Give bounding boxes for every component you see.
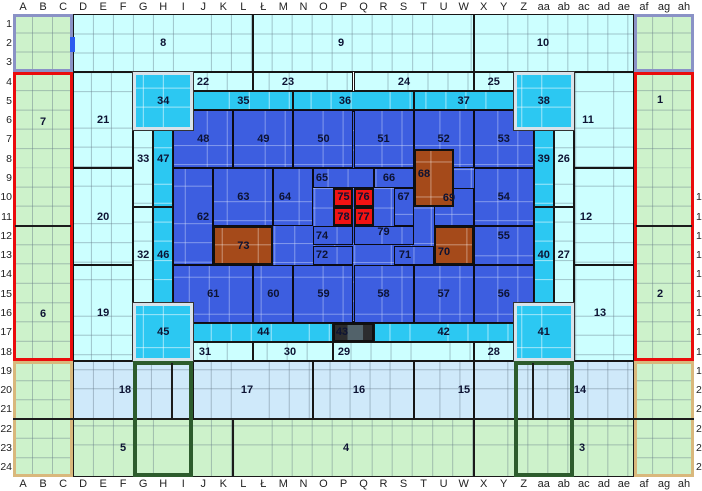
- row-header-right-16: 1: [696, 307, 702, 319]
- col-header-bottom-H: H: [159, 478, 167, 490]
- row-header-left-2: 2: [0, 37, 12, 49]
- sector-18[interactable]: [73, 361, 193, 419]
- row-header-right-20: 2: [696, 384, 702, 396]
- col-header-bottom-Z: Z: [520, 478, 527, 490]
- col-header-top-X: X: [480, 1, 487, 13]
- row-header-right-15: 1: [696, 288, 702, 300]
- sector-74[interactable]: [313, 226, 353, 245]
- col-header-top-ag: ag: [658, 1, 670, 13]
- sector-46[interactable]: [153, 207, 173, 303]
- sector-25[interactable]: [474, 72, 514, 91]
- venue-seat-map: 7612891021201911121322232425313029283332…: [0, 0, 702, 491]
- col-header-bottom-Y: Y: [500, 478, 507, 490]
- row-header-left-15: 15: [0, 288, 12, 300]
- col-header-top-S: S: [400, 1, 407, 13]
- sector-70[interactable]: [434, 226, 474, 265]
- sector-15[interactable]: [414, 361, 474, 419]
- col-header-top-R: R: [380, 1, 388, 13]
- row-header-left-6: 6: [0, 114, 12, 126]
- sector-45[interactable]: [133, 303, 193, 361]
- row-header-right-17: 1: [696, 326, 702, 338]
- col-header-top-J: J: [201, 1, 207, 13]
- col-header-top-G: G: [139, 1, 148, 13]
- row-header-left-22: 22: [0, 423, 12, 435]
- row-header-left-16: 16: [0, 307, 12, 319]
- col-header-top-ah: ah: [678, 1, 690, 13]
- col-header-top-O: O: [319, 1, 328, 13]
- sector-49[interactable]: [233, 110, 293, 168]
- col-header-top-A: A: [19, 1, 26, 13]
- col-header-bottom-af: af: [639, 478, 648, 490]
- col-header-bottom-ah: ah: [678, 478, 690, 490]
- row-header-left-17: 17: [0, 326, 12, 338]
- sector-72[interactable]: [313, 246, 353, 265]
- col-header-top-ad: ad: [598, 1, 610, 13]
- sector-37[interactable]: [414, 91, 514, 110]
- col-header-top-Q: Q: [359, 1, 368, 13]
- sector-58[interactable]: [354, 265, 414, 323]
- sector-29[interactable]: [333, 342, 473, 361]
- sector-9[interactable]: [253, 14, 473, 72]
- row-header-left-7: 7: [0, 133, 12, 145]
- sector-17[interactable]: [193, 361, 313, 419]
- sector-77[interactable]: [354, 207, 374, 226]
- sector-60[interactable]: [253, 265, 293, 323]
- sector-7[interactable]: [13, 72, 73, 226]
- sector-79[interactable]: [354, 226, 414, 245]
- sector-35[interactable]: [193, 91, 293, 110]
- sector-3[interactable]: [474, 419, 634, 477]
- sector-68[interactable]: [414, 149, 454, 207]
- sector-50[interactable]: [293, 110, 353, 168]
- row-header-left-5: 5: [0, 95, 12, 107]
- row-header-left-4: 4: [0, 76, 12, 88]
- sector-64[interactable]: [273, 168, 313, 226]
- col-header-bottom-ag: ag: [658, 478, 670, 490]
- col-header-top-F: F: [120, 1, 127, 13]
- col-header-top-L: L: [240, 1, 246, 13]
- row-header-left-14: 14: [0, 268, 12, 280]
- row-header-left-13: 13: [0, 249, 12, 261]
- col-header-top-aa: aa: [538, 1, 550, 13]
- sector-63[interactable]: [213, 168, 273, 226]
- col-header-top-W: W: [458, 1, 468, 13]
- row-header-left-21: 21: [0, 403, 12, 415]
- row-header-right-19: 1: [696, 365, 702, 377]
- col-header-bottom-ad: ad: [598, 478, 610, 490]
- sector-10[interactable]: [474, 14, 634, 72]
- col-header-bottom-B: B: [39, 478, 46, 490]
- sector-30[interactable]: [253, 342, 333, 361]
- row-header-left-24: 24: [0, 461, 12, 473]
- sector-27[interactable]: [554, 207, 574, 303]
- col-header-bottom-X: X: [480, 478, 487, 490]
- col-header-top-K: K: [220, 1, 227, 13]
- col-header-bottom-ae: ae: [618, 478, 630, 490]
- sector-44[interactable]: [193, 323, 333, 342]
- sector-43[interactable]: [333, 323, 373, 342]
- col-header-bottom-L: L: [240, 478, 246, 490]
- sector-26[interactable]: [554, 130, 574, 207]
- row-header-right-10: 1: [696, 191, 702, 203]
- sector-5[interactable]: [73, 419, 233, 477]
- sector-39[interactable]: [534, 130, 554, 207]
- sector-11[interactable]: [574, 72, 634, 168]
- col-header-bottom-C: C: [59, 478, 67, 490]
- col-header-top-B: B: [39, 1, 46, 13]
- col-header-top-af: af: [639, 1, 648, 13]
- row-header-left-18: 18: [0, 346, 12, 358]
- sector-13[interactable]: [574, 265, 634, 361]
- col-header-bottom-ac: ac: [578, 478, 590, 490]
- sector-21[interactable]: [73, 72, 133, 168]
- col-header-bottom-K: K: [220, 478, 227, 490]
- col-header-bottom-I: I: [182, 478, 185, 490]
- col-header-bottom-aa: aa: [538, 478, 550, 490]
- green-corner-top-left: [13, 14, 73, 72]
- sector-59[interactable]: [293, 265, 353, 323]
- col-header-top-N: N: [299, 1, 307, 13]
- sector-51[interactable]: [354, 110, 414, 168]
- row-header-left-11: 11: [0, 211, 12, 223]
- sector-32[interactable]: [133, 207, 153, 303]
- row-header-right-14: 1: [696, 268, 702, 280]
- sector-36[interactable]: [293, 91, 413, 110]
- col-header-bottom-S: S: [400, 478, 407, 490]
- col-header-top-M: M: [279, 1, 288, 13]
- sector-41[interactable]: [514, 303, 574, 361]
- col-header-bottom-ab: ab: [558, 478, 570, 490]
- sector-19[interactable]: [73, 265, 133, 361]
- row-header-right-24: 2: [696, 461, 702, 473]
- sector-1[interactable]: [634, 72, 694, 226]
- sector-8[interactable]: [73, 14, 253, 72]
- row-header-right-18: 1: [696, 346, 702, 358]
- green-corner-bottom-left: [13, 361, 73, 477]
- sector-31[interactable]: [193, 342, 253, 361]
- row-header-left-23: 23: [0, 442, 12, 454]
- row-header-right-11: 1: [696, 211, 702, 223]
- sector-22[interactable]: [193, 72, 253, 91]
- col-header-top-Y: Y: [500, 1, 507, 13]
- green-corner-bottom-right: [634, 361, 694, 477]
- col-header-top-I: I: [182, 1, 185, 13]
- col-header-bottom-N: N: [299, 478, 307, 490]
- sector-38[interactable]: [514, 72, 574, 130]
- col-header-bottom-E: E: [99, 478, 106, 490]
- col-header-bottom-U: U: [440, 478, 448, 490]
- sector-34[interactable]: [133, 72, 193, 130]
- sector-33[interactable]: [133, 130, 153, 207]
- col-header-bottom-Ł: Ł: [260, 478, 266, 490]
- sector-54[interactable]: [474, 168, 534, 226]
- row-header-right-13: 1: [696, 249, 702, 261]
- col-header-bottom-P: P: [340, 478, 347, 490]
- row-header-left-1: 1: [0, 18, 12, 30]
- col-header-bottom-D: D: [79, 478, 87, 490]
- col-header-bottom-G: G: [139, 478, 148, 490]
- row-header-left-8: 8: [0, 153, 12, 165]
- sector-73[interactable]: [213, 226, 273, 265]
- col-header-top-U: U: [440, 1, 448, 13]
- row-header-right-12: 1: [696, 230, 702, 242]
- sector-76[interactable]: [354, 188, 374, 207]
- sector-20[interactable]: [73, 168, 133, 264]
- col-header-bottom-Q: Q: [359, 478, 368, 490]
- col-header-bottom-A: A: [19, 478, 26, 490]
- col-header-top-H: H: [159, 1, 167, 13]
- sector-62[interactable]: [173, 168, 213, 264]
- row-header-right-21: 2: [696, 403, 702, 415]
- row-header-left-19: 19: [0, 365, 12, 377]
- col-header-top-D: D: [79, 1, 87, 13]
- sector-47[interactable]: [153, 130, 173, 207]
- col-header-top-Ł: Ł: [260, 1, 266, 13]
- sector-4[interactable]: [233, 419, 473, 477]
- col-header-bottom-O: O: [319, 478, 328, 490]
- sector-57[interactable]: [414, 265, 474, 323]
- col-header-top-Z: Z: [520, 1, 527, 13]
- col-header-top-C: C: [59, 1, 67, 13]
- sector-28[interactable]: [474, 342, 514, 361]
- sector-66[interactable]: [374, 168, 414, 187]
- sector-75[interactable]: [333, 188, 353, 207]
- sector-6[interactable]: [13, 226, 73, 361]
- sector-2[interactable]: [634, 226, 694, 361]
- row-header-right-23: 2: [696, 442, 702, 454]
- sector-23[interactable]: [253, 72, 353, 91]
- sector-40[interactable]: [534, 207, 554, 303]
- col-header-bottom-W: W: [458, 478, 468, 490]
- col-header-top-T: T: [420, 1, 427, 13]
- sector-42[interactable]: [374, 323, 514, 342]
- sector-78[interactable]: [333, 207, 353, 226]
- sector-16[interactable]: [313, 361, 413, 419]
- col-header-bottom-M: M: [279, 478, 288, 490]
- col-header-bottom-R: R: [380, 478, 388, 490]
- row-header-left-12: 12: [0, 230, 12, 242]
- row-header-left-10: 10: [0, 191, 12, 203]
- sector-12[interactable]: [574, 168, 634, 264]
- sector-71[interactable]: [394, 246, 434, 265]
- sector-55[interactable]: [474, 226, 534, 265]
- green-corner-top-right: [634, 14, 694, 72]
- col-header-top-P: P: [340, 1, 347, 13]
- sector-24[interactable]: [354, 72, 474, 91]
- sector-14[interactable]: [474, 361, 634, 419]
- row-header-left-3: 3: [0, 56, 12, 68]
- sector-65[interactable]: [313, 168, 373, 187]
- col-header-bottom-J: J: [201, 478, 207, 490]
- col-header-top-E: E: [99, 1, 106, 13]
- sector-67[interactable]: [394, 188, 414, 227]
- col-header-top-ac: ac: [578, 1, 590, 13]
- col-header-top-ae: ae: [618, 1, 630, 13]
- col-header-bottom-F: F: [120, 478, 127, 490]
- row-header-left-20: 20: [0, 384, 12, 396]
- row-header-left-9: 9: [0, 172, 12, 184]
- col-header-bottom-T: T: [420, 478, 427, 490]
- col-header-top-ab: ab: [558, 1, 570, 13]
- row-header-right-22: 2: [696, 423, 702, 435]
